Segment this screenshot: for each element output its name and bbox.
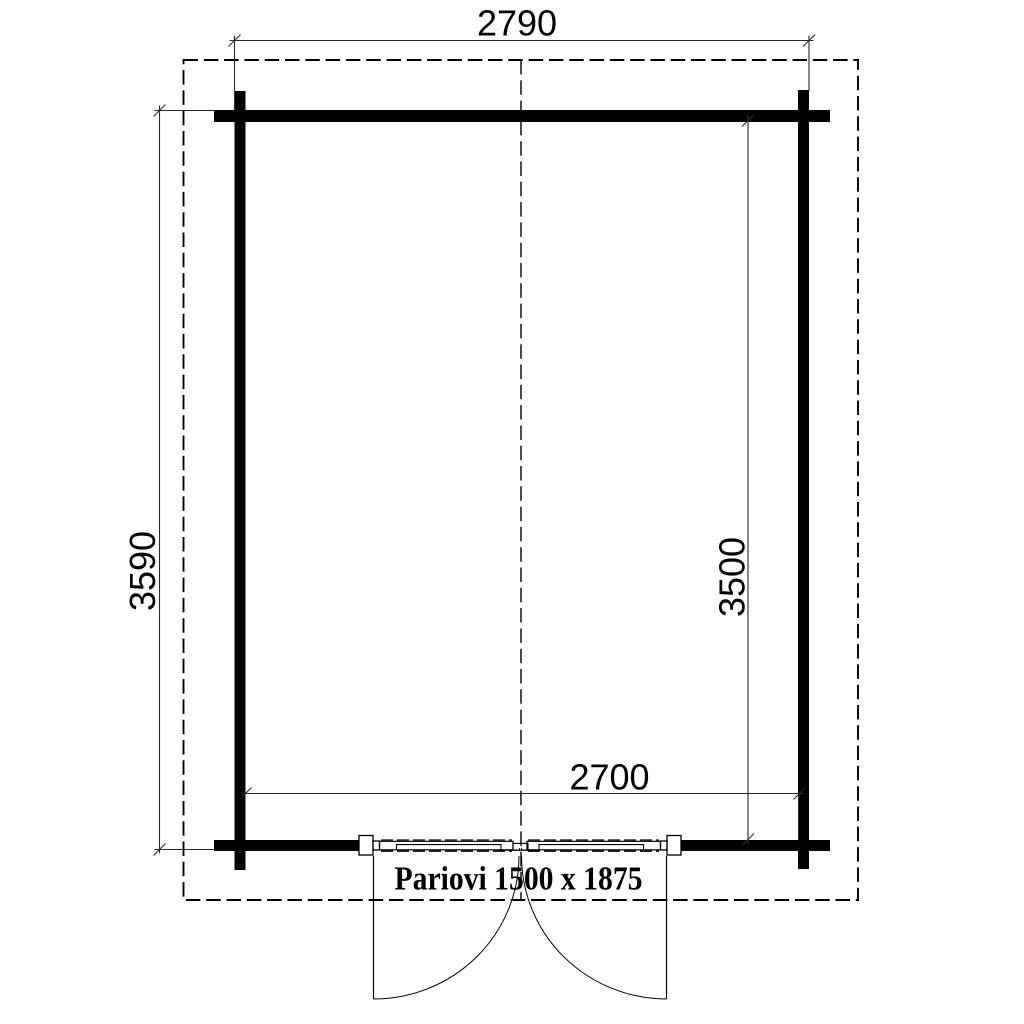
svg-text:3500: 3500 bbox=[712, 537, 753, 617]
svg-text:3590: 3590 bbox=[122, 531, 163, 611]
svg-text:2700: 2700 bbox=[569, 757, 649, 798]
svg-text:2790: 2790 bbox=[477, 3, 557, 44]
svg-text:Pariovi 1500 x 1875: Pariovi 1500 x 1875 bbox=[395, 861, 643, 898]
